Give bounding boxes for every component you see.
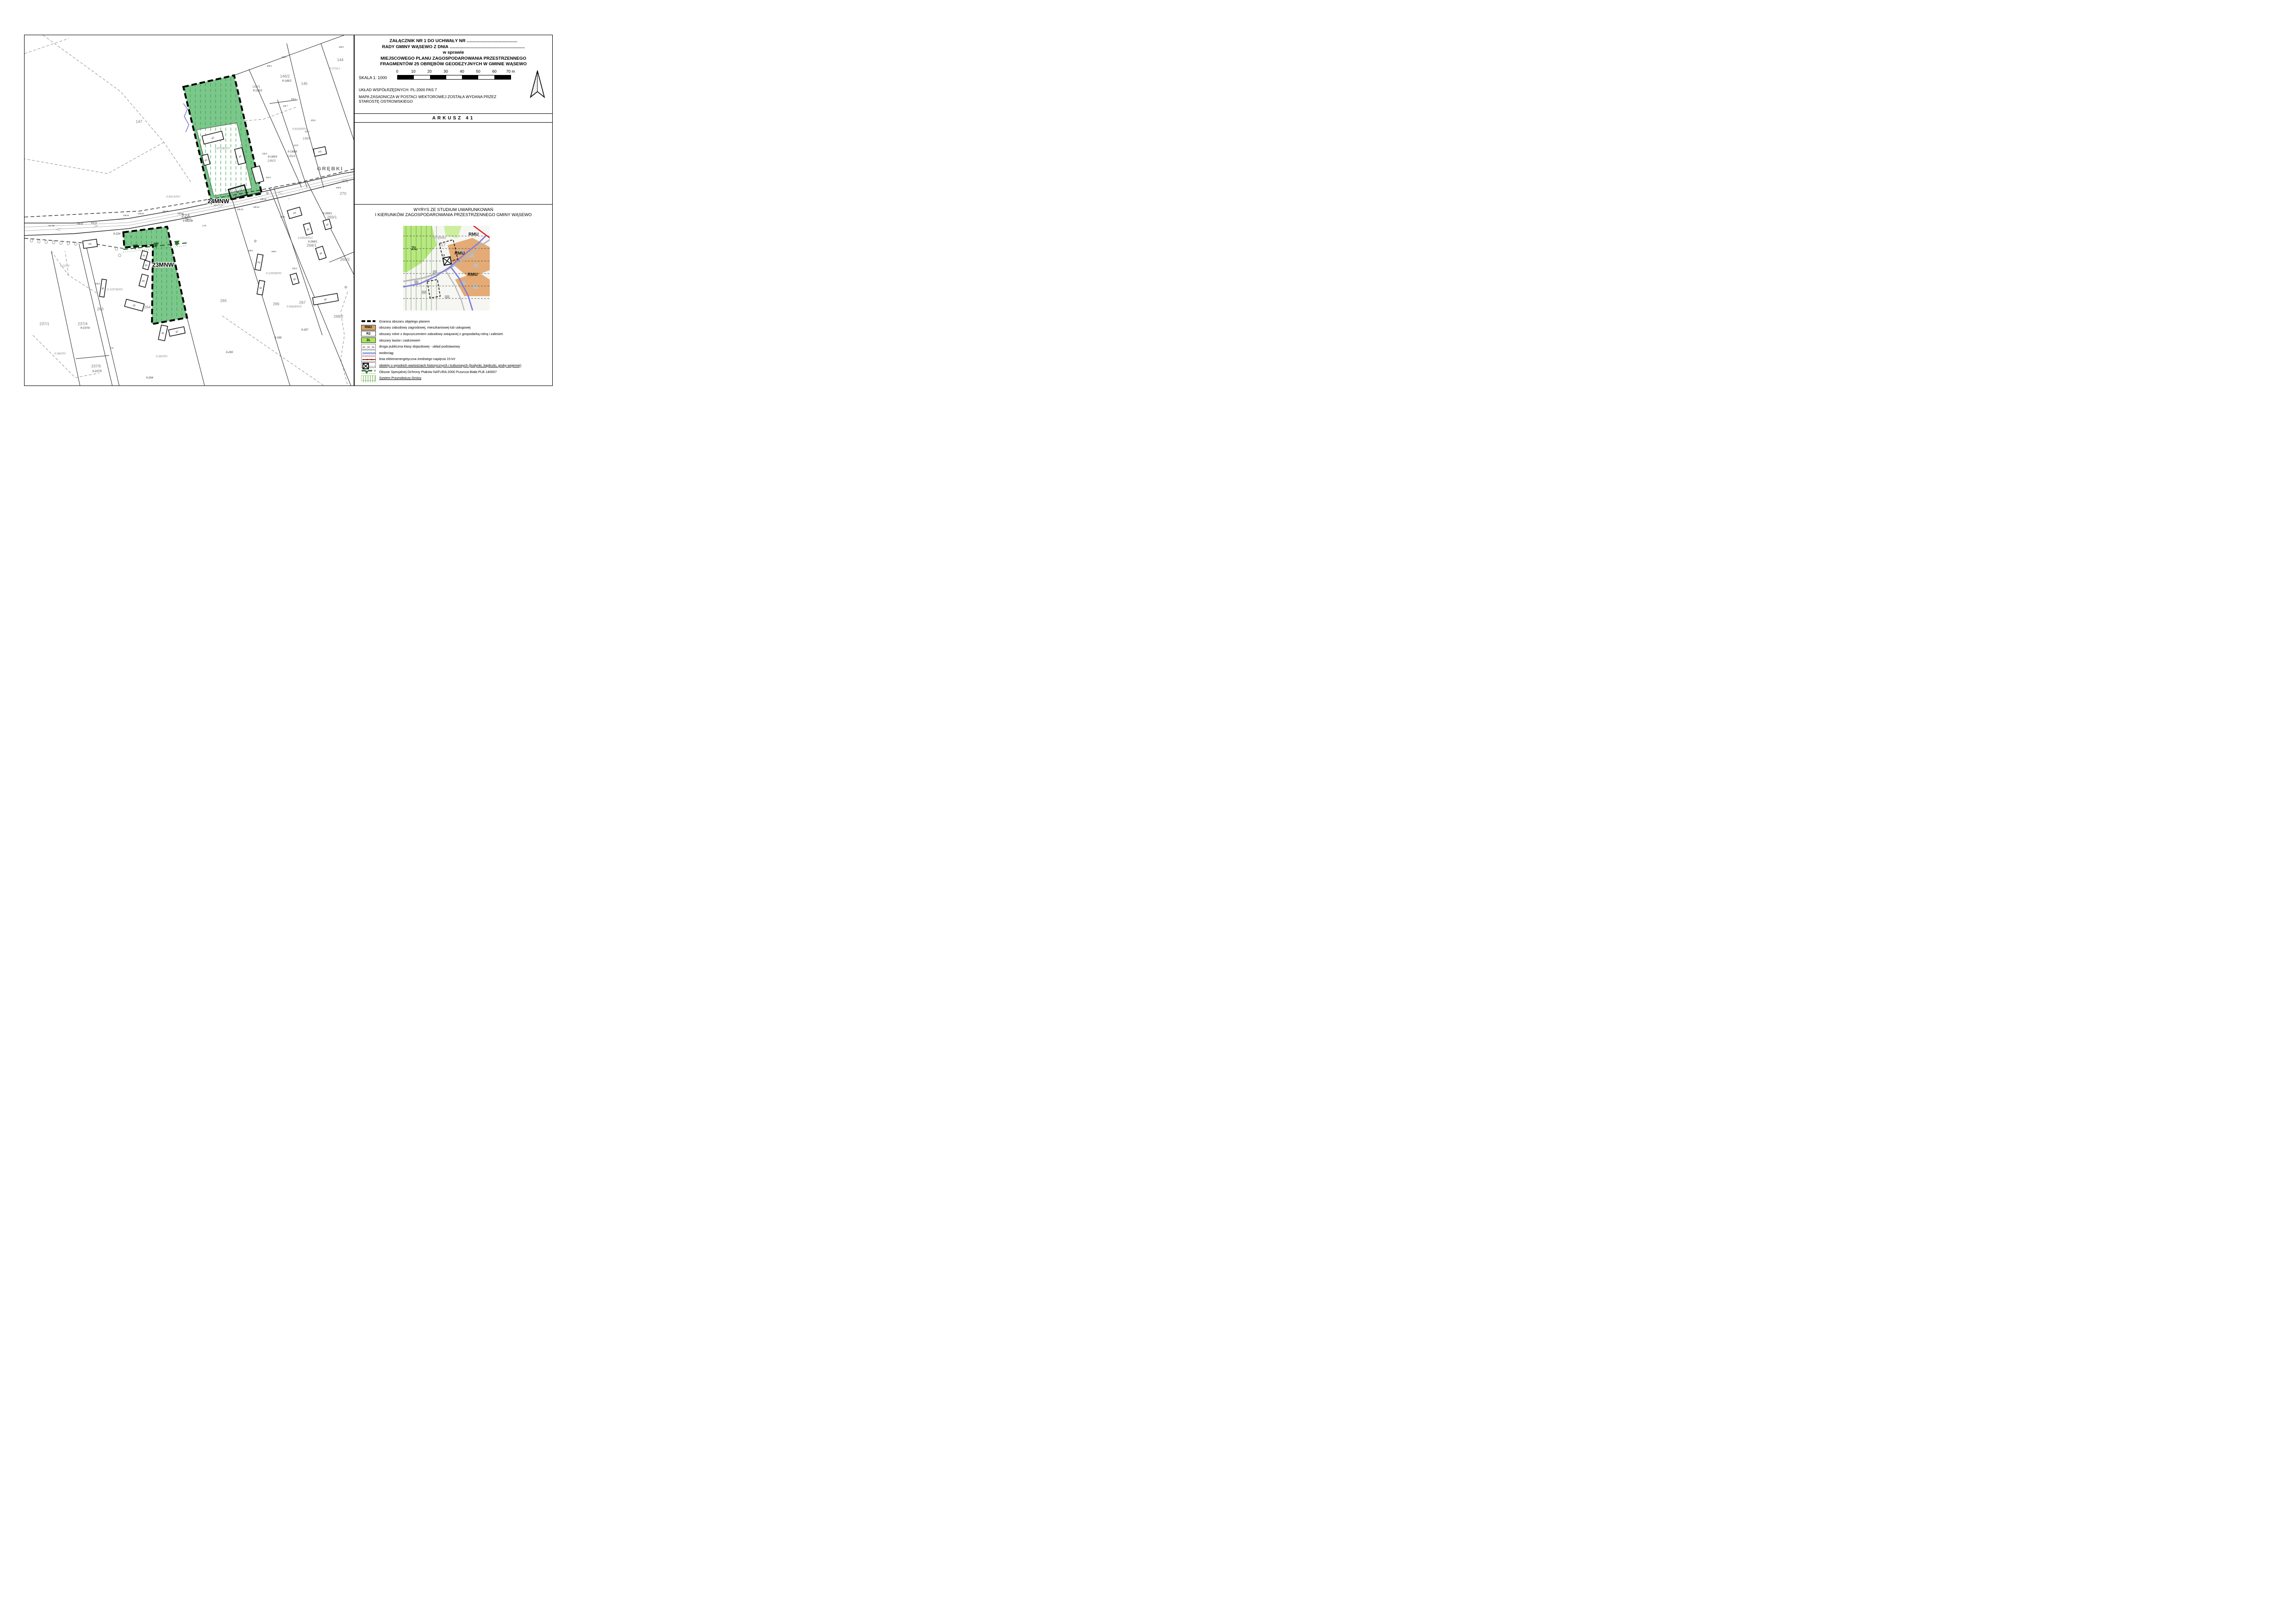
building-m1: m1 [287, 207, 302, 219]
building-g1: g1 [303, 223, 312, 235]
inset-label: 017 [438, 243, 445, 247]
scale-tick: 50 [476, 69, 480, 74]
map-label: 9-146/4 [287, 150, 297, 153]
map-label: 107.7 [213, 204, 218, 206]
tree-symbols [30, 239, 121, 257]
map-label: 270 [340, 191, 346, 196]
legend-swatch-zl: ZL [361, 337, 376, 343]
map-label: 110.3 [266, 176, 271, 179]
map-label: 23MNW [152, 261, 175, 268]
map-label: 109.5 [291, 98, 296, 100]
legend-swatch-granica [361, 318, 376, 324]
map-label: 109.22 [237, 208, 243, 211]
legend-swatch-wodociag [361, 350, 376, 355]
scale-tick: 20 [427, 69, 431, 74]
scale-tick: 10 [411, 69, 415, 74]
building-g1: g1 [100, 279, 106, 297]
map-label: 9-380/RV [54, 353, 66, 355]
plan-sheet: g1g1g1h1m1m1g1g1g1g1g1m1g1m1g1g1g1g1g1g1… [0, 0, 574, 406]
map-label: 110.1 [305, 130, 310, 132]
legend-item-natura: Obszar Specjalnej Ochrony Ptaków NATURA … [361, 368, 549, 375]
legend-item-rmu: RMUobszary zabudowy zagrodowej, mieszkan… [361, 324, 549, 331]
map-label: 269/2 [340, 257, 349, 262]
scale-tick: 60 [492, 69, 496, 74]
legend-label: obszary zabudowy zagrodowej, mieszkaniow… [379, 325, 471, 330]
legend-swatch-obiekty: B, K, G [361, 362, 376, 368]
title-block: ZAŁĄCZNIK NR 1 DO UCHWAŁY NR ...........… [354, 35, 553, 114]
svg-text:m1: m1 [257, 261, 261, 264]
legend-label: linia elektroenergetyczna średniego napi… [379, 357, 455, 361]
building-g1: g1 [125, 299, 144, 311]
legend-label: droga publiczna klasy dojazdowej - układ… [379, 344, 460, 348]
studium-inset-map: ZLGrębki017RMURMURMU3 [403, 226, 490, 311]
legend-item-droga: droga publiczna klasy dojazdowej - układ… [361, 343, 549, 350]
map-label: 108.31 [123, 214, 130, 217]
map-label: 109.9 [336, 187, 341, 189]
map-label: 145 [301, 81, 307, 86]
map-label: 108.64 [178, 212, 184, 215]
legend-item-obiekty: B, K, Gobiekty o wysokich wartościach hi… [361, 362, 549, 369]
map-label: 109.8 [262, 152, 267, 155]
map-label: 237/4 [78, 321, 87, 326]
legend-label: obszary lasów i zadrzewień [379, 338, 420, 342]
map-label: 109.3 [267, 65, 272, 67]
wyrys-title-line2: I KIERUNKÓW ZAGOSPODAROWANIA PRZESTRZENN… [355, 212, 552, 218]
attachment-title-line1: ZAŁĄCZNIK NR 1 DO UCHWAŁY NR ...........… [355, 38, 552, 44]
map-label: 109.44 [253, 206, 260, 208]
building-g1: g1 [290, 273, 299, 285]
building-g1: g1 [143, 260, 150, 269]
legend-swatch-r2: R2 [361, 331, 376, 336]
legend-label: obiekty o wysokich wartościach historycz… [379, 363, 521, 367]
legend-label: Granica obszaru objętego planem [379, 319, 430, 323]
map-label: 9-237/3 [60, 265, 70, 268]
map-label: 108.40 [235, 196, 241, 198]
legend-label: Obszar Specjalnej Ochrony Ptaków NATURA … [379, 370, 497, 374]
building-g1: g1 [168, 327, 185, 336]
map-label: 264 [144, 305, 150, 309]
map-label: 268/1 [307, 243, 317, 248]
legend-label: System Przyrodniczy Gminy [379, 376, 421, 380]
map-label: 237/1 [39, 321, 49, 326]
map-label: 9-146/2 [282, 80, 292, 83]
map-label: 109.0 [271, 250, 276, 253]
map-label: 9-237/5 [92, 370, 102, 373]
map-label: 146/5 [303, 137, 311, 140]
map-label: 268/2 [333, 314, 343, 318]
scale-bar-segments [397, 75, 511, 80]
map-label: 265 [220, 298, 227, 303]
map-label: 109.1 [248, 249, 253, 252]
wyrys-panel: WYRYS ZE STUDIUM UWARUNKOWAŃ I KIERUNKÓW… [354, 204, 553, 386]
attachment-title-line3: w sprawie [355, 50, 552, 56]
map-label: 108.71 [185, 218, 192, 220]
legend-swatch-system [361, 375, 376, 381]
base-map-source-note: MAPA ZASADNICZA W POSTACI WEKTOROWEJ ZOS… [359, 94, 512, 104]
scale-tick: 0 [396, 69, 399, 74]
map-label: t [289, 198, 290, 200]
inset-historic-object-icon [443, 256, 452, 265]
scale-row: SKALA 1: 1000 010203040506070 m [355, 69, 552, 85]
map-label: 9-373/Ls [329, 68, 340, 70]
scale-bar: 010203040506070 m [397, 69, 511, 80]
north-arrow-icon [529, 70, 546, 99]
scale-tick-numbers: 010203040506070 m [397, 69, 511, 74]
map-label: 107.65 [48, 224, 55, 227]
attachment-title-line2: RADY GMINY WĄSEWO Z DNIA ...............… [355, 44, 552, 50]
scale-label: SKALA 1: 1000 [359, 75, 387, 80]
svg-text:B, K, G: B, K, G [369, 365, 375, 367]
building-g1: g1 [323, 219, 332, 230]
building-g1: g1 [139, 274, 148, 287]
map-label: 9-1057/B/RV [107, 289, 123, 292]
map-label: 9-265 [226, 351, 233, 354]
building-g1: g1 [316, 246, 326, 260]
main-map: g1g1g1h1m1m1g1g1g1g1g1m1g1m1g1g1g1g1g1g1… [24, 35, 354, 386]
map-label: 237/5 [91, 364, 101, 368]
map-label: 271 [342, 179, 348, 183]
map-label: 9-237/4 [81, 327, 90, 330]
arkusz-bar: ARKUSZ 41 [354, 113, 553, 123]
map-label: 9-266 [275, 336, 282, 339]
building-m1: m1 [255, 254, 263, 270]
map-label: 108.05 [77, 223, 83, 225]
building-g1: g1 [312, 293, 338, 305]
attachment-title-line5: FRAGMENTÓW 25 OBRĘBÓW GEODEZYJNYCH W GMI… [355, 62, 552, 68]
building-g1: g1 [158, 325, 168, 341]
inset-label: ZL [411, 246, 418, 251]
map-label: 109.2 [281, 56, 287, 58]
building-g1: g1 [140, 251, 148, 260]
map-label: 109.7 [283, 105, 288, 107]
legend-item-zl: ZLobszary lasów i zadrzewień [361, 337, 549, 343]
map-label: j.mb. [202, 224, 207, 227]
map-label: 147 [136, 119, 142, 124]
wodociag-line [183, 104, 189, 132]
svg-text:g1: g1 [101, 287, 105, 290]
map-label: 109.3 [339, 46, 344, 48]
map-label: 9-870/B/RVI [215, 147, 230, 150]
map-label: 9-898/B/RVI [287, 305, 302, 308]
legend-swatch-droga [361, 344, 376, 349]
map-label: 9-264 [146, 377, 154, 379]
map-label: 9-1059/B/RV [266, 273, 282, 275]
legend-label: obszary rolne z dopuszczeniem zabudowy z… [379, 332, 503, 336]
map-label: 266 [273, 301, 279, 306]
map-label: 108.08 [91, 222, 97, 224]
inset-label: RMU [468, 272, 478, 277]
inset-label: RMU [468, 232, 479, 237]
legend-item-system: System Przyrodniczy Gminy [361, 375, 549, 381]
map-label: 9-146/3 [268, 155, 277, 158]
map-label: 146/2 [280, 74, 290, 79]
wyrys-title-line1: WYRYS ZE STUDIUM UWARUNKOWAŃ [355, 207, 552, 213]
map-label: 146/4 [287, 155, 296, 158]
legend-swatch-linia [361, 356, 376, 362]
scale-tick: 70 m [506, 69, 515, 74]
scale-tick: 40 [460, 69, 464, 74]
map-label: GRĘBKI [317, 166, 343, 172]
legend: Granica obszaru objętego planemRMUobszar… [361, 318, 549, 381]
legend-item-r2: R2obszary rolne z dopuszczeniem zabudowy… [361, 331, 549, 337]
map-label: 146/1 [252, 86, 261, 89]
map-label: 9-146/1 [253, 90, 262, 93]
legend-item-wodociag: wodociąg [361, 349, 549, 356]
map-label: 109.3 [292, 267, 297, 270]
svg-text:m1: m1 [88, 243, 92, 246]
map-label: 144 [337, 57, 343, 62]
map-label: 108.40 [162, 210, 169, 212]
map-label: 109.8 [311, 119, 316, 122]
map-label: 24MNW [207, 198, 230, 205]
coordinate-system-note: UKŁAD WSPÓŁRZĘDNYCH: PL-2000 PAS 7 [359, 87, 552, 92]
building-m1: m1 [83, 239, 98, 249]
main-map-canvas: g1g1g1h1m1m1g1g1g1g1g1m1g1m1g1g1g1g1g1g1… [25, 35, 354, 386]
map-label: 5 [130, 236, 133, 237]
inset-label: RMU [455, 251, 465, 256]
legend-item-granica: Granica obszaru objętego planem [361, 318, 549, 325]
map-label: 110.0 [293, 144, 299, 146]
map-label: 146/3 [268, 159, 276, 162]
studium-inset-canvas: ZLGrębki017RMURMURMU3 [403, 226, 490, 311]
building-m1: m1 [313, 147, 327, 156]
map-label: 269/1 [327, 215, 337, 219]
map-label: 108.53 [138, 212, 144, 215]
map-label: 267 [299, 300, 306, 305]
legend-item-linia: linia elektroenergetyczna średniego napi… [361, 356, 549, 362]
legend-swatch-rmu: RMU [361, 325, 376, 330]
attachment-title-line4: MIEJSCOWEGO PLANU ZAGOSPODAROWANIA PRZES… [355, 56, 552, 62]
legend-swatch-natura [361, 369, 376, 374]
map-label: 9-267 [301, 329, 309, 331]
inset-label: Grębki [433, 235, 446, 240]
map-label: 108.8 [95, 283, 100, 285]
map-label: j-gr. [110, 347, 114, 349]
empty-panel [354, 122, 553, 205]
map-label: 9-846/B/RVI [298, 237, 313, 240]
legend-label: wodociąg [379, 351, 393, 355]
map-label: 110.0 [280, 216, 285, 218]
map-label: 9-841/5/RV [166, 196, 181, 199]
map-label: 9-382/RV [156, 355, 168, 358]
map-label: 263 [97, 306, 103, 311]
arkusz-label: ARKUSZ 41 [432, 116, 475, 121]
map-label: 109.49 [260, 198, 267, 200]
scale-tick: 30 [443, 69, 448, 74]
map-label: 9-224 [113, 233, 121, 236]
